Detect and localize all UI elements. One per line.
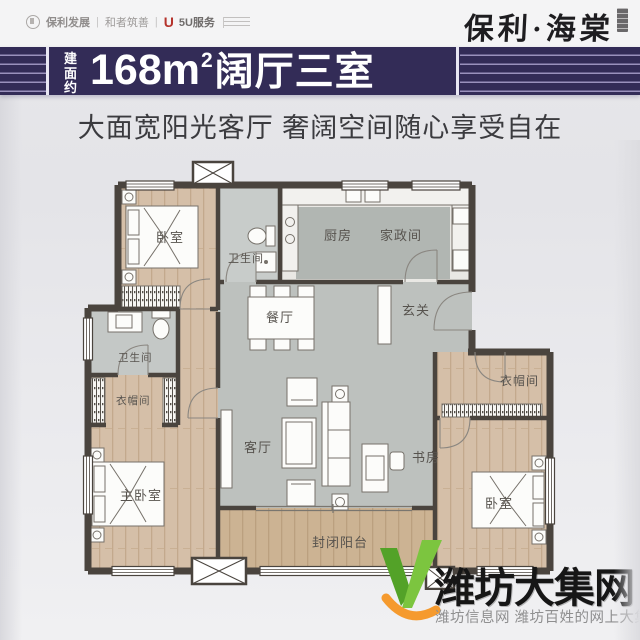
nightstand (122, 190, 136, 204)
label-master-bedroom: 主卧室 (120, 488, 162, 503)
logo-divider: | (155, 16, 158, 28)
developer-logos: 保利发展 | 和者筑善 | U 5U服务 (26, 14, 250, 30)
nightstand (90, 528, 104, 542)
desk-top (366, 456, 384, 480)
header: 保利发展 | 和者筑善 | U 5U服务 保利·海棠 (0, 0, 640, 47)
desk-chair (390, 452, 404, 470)
logo-5u-text: 5U服务 (179, 14, 215, 30)
subtitle: 大面宽阳光客厅 奢阔空间随心享受自在 (0, 106, 640, 145)
logo-poly-text: 保利发展 (46, 14, 90, 30)
sink-drain (264, 260, 268, 264)
brand-seal (617, 8, 628, 32)
kitchen-counter-left (282, 205, 298, 271)
floor-lamp (332, 494, 348, 510)
fineprint-marks (223, 17, 250, 28)
brand-name: 保利·海棠 (463, 4, 615, 48)
5u-icon: U (164, 14, 173, 30)
flyer-page: 保利发展 | 和者筑善 | U 5U服务 保利·海棠 建面约 168m 2 阔厅… (0, 0, 640, 640)
appliance (453, 208, 469, 224)
kitchen-sink (346, 190, 361, 202)
watermark-site-name: 潍坊大集网 (434, 554, 634, 614)
area-note: 建面约 (64, 52, 79, 96)
logo-hezhe-text: 和者筑善 (105, 14, 149, 30)
banner-separator (46, 47, 49, 95)
kitchen-sink (365, 190, 380, 202)
label-bedroom-right: 卧室 (485, 496, 513, 511)
toilet-left (152, 310, 170, 339)
title-suffix: 阔厅三室 (215, 41, 375, 97)
floor-lamp (332, 386, 348, 402)
nightstand (532, 456, 546, 470)
main-title: 168m 2 阔厅三室 (90, 46, 375, 94)
floorplan: 卧室 卫生间 厨房 家政间 玄关 餐厅 客厅 书房 卫生间 衣帽间 主卧室 衣帽… (60, 160, 580, 590)
poly-circle-icon (26, 15, 40, 29)
banner-separator (456, 47, 459, 95)
label-cloak-right: 衣帽间 (500, 373, 539, 388)
label-cloak-left: 衣帽间 (116, 394, 151, 407)
floor-kitchen (296, 207, 450, 279)
title-banner: 建面约 168m 2 阔厅三室 (0, 47, 640, 95)
label-bath-left: 卫生间 (118, 351, 153, 364)
watermark-tagline: 潍坊信息网 潍坊百姓的网上大集 (435, 606, 640, 627)
toilet-top (248, 226, 275, 246)
wardrobe (122, 286, 180, 307)
cloak-shelf (442, 404, 542, 417)
washer (453, 250, 469, 270)
cloak-shelf (90, 378, 105, 423)
tv-cabinet (221, 410, 232, 488)
label-kitchen: 厨房 (324, 228, 352, 243)
label-housekeeping: 家政间 (380, 228, 422, 243)
watermark: 潍坊大集网 潍坊信息网 潍坊百姓的网上大集 (372, 540, 640, 635)
label-balcony: 封闭阳台 (312, 535, 368, 550)
label-foyer: 玄关 (402, 303, 430, 318)
banner-lines-right (460, 47, 640, 95)
nightstand (122, 270, 136, 284)
label-living: 客厅 (244, 440, 272, 455)
label-bath-top: 卫生间 (228, 251, 264, 265)
shoe-cabinet (378, 286, 391, 344)
watermark-v-logo (380, 540, 442, 630)
label-study: 书房 (412, 450, 440, 465)
area-number: 168m (90, 46, 200, 95)
label-dining: 餐厅 (266, 310, 294, 325)
banner-lines-left (0, 47, 46, 95)
label-bedroom-top-left: 卧室 (156, 230, 184, 245)
area-superscript: 2 (201, 49, 213, 73)
logo-divider: | (96, 16, 99, 28)
